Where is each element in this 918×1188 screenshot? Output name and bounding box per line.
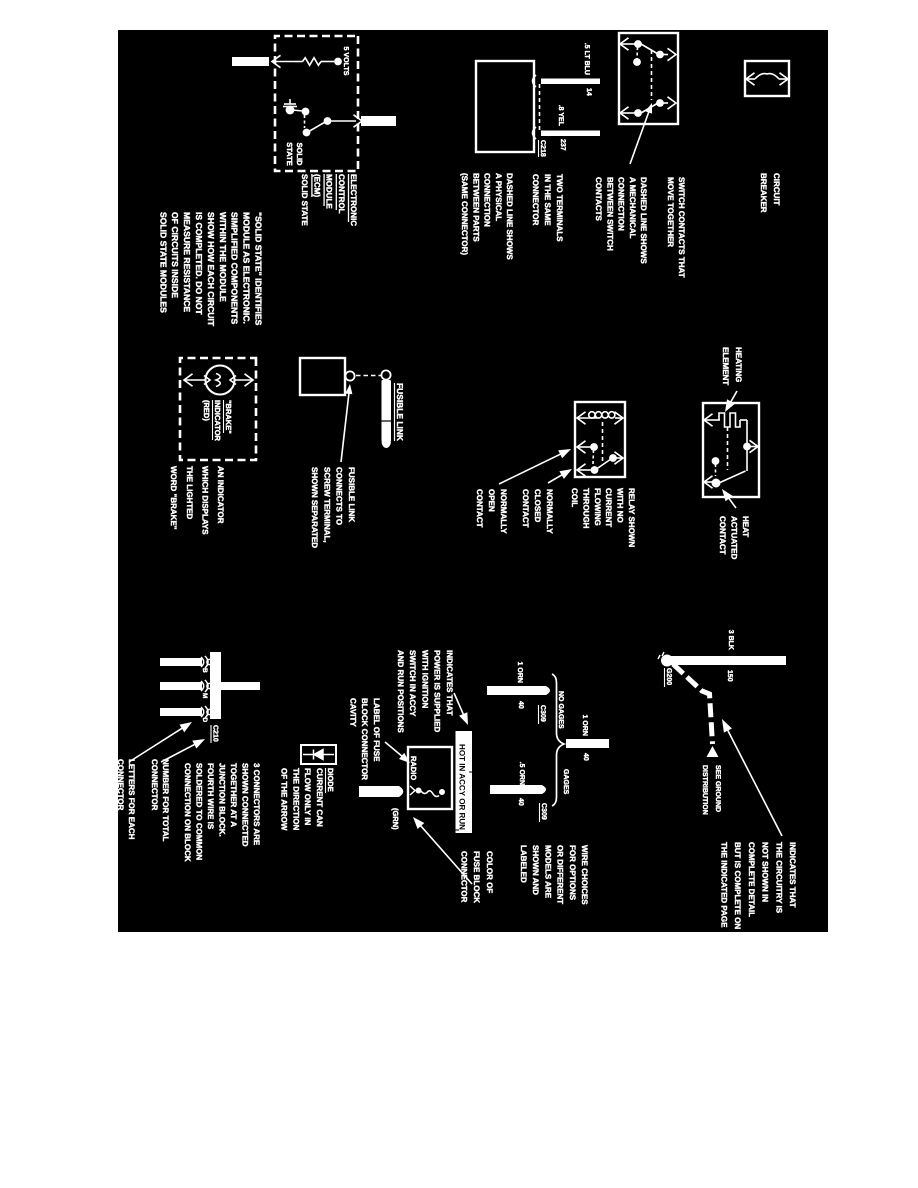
svg-text:ACTUATED: ACTUATED [730,516,739,560]
svg-text:1 ORN: 1 ORN [516,662,523,683]
svg-text:OPEN: OPEN [487,489,496,512]
svg-text:RELAY SHOWN: RELAY SHOWN [627,488,636,547]
svg-text:HEAT: HEAT [741,516,750,537]
svg-text:INDICATES THAT: INDICATES THAT [788,842,797,908]
svg-text:C210: C210 [212,725,219,742]
svg-text:CONNECTOR: CONNECTOR [150,759,159,811]
svg-text:5 VOLTS: 5 VOLTS [342,47,349,76]
svg-text:SOLID STATE: SOLID STATE [300,174,309,226]
svg-text:OR DIFFERENT: OR DIFFERENT [556,845,565,904]
svg-text:SOLID: SOLID [295,143,304,167]
svg-text:FLOW ONLY IN: FLOW ONLY IN [303,768,312,826]
svg-text:INDICATES THAT: INDICATES THAT [445,650,454,716]
svg-text:C309: C309 [539,705,546,722]
svg-text:NORMALLY: NORMALLY [499,489,508,534]
svg-text:DIODE: DIODE [326,768,335,792]
svg-text:FUSIBLE LINK: FUSIBLE LINK [395,383,405,442]
svg-text:SHOWN SEPARATED: SHOWN SEPARATED [310,467,319,548]
svg-text:FUSIBLE LINK: FUSIBLE LINK [347,467,356,522]
svg-text:THE INDICATED PAGE: THE INDICATED PAGE [720,842,729,928]
svg-text:40: 40 [517,701,524,709]
svg-text:237: 237 [559,139,566,151]
svg-text:WITH NO: WITH NO [616,488,625,523]
svg-text:CURRENT CAN: CURRENT CAN [315,768,324,827]
svg-text:B: B [201,668,208,673]
svg-text:MODULE AS ELECTRONIC.: MODULE AS ELECTRONIC. [242,212,252,324]
svg-text:GAGES: GAGES [562,769,569,795]
svg-text:.8 YEL: .8 YEL [557,105,564,127]
svg-text:IS COMPLETED. DO NOT: IS COMPLETED. DO NOT [194,212,204,315]
svg-text:MOVE TOGETHER: MOVE TOGETHER [666,177,675,247]
svg-text:CONTROL: CONTROL [337,174,346,214]
svg-text:A PHYSICAL: A PHYSICAL [494,173,503,221]
svg-text:NUMBER FOR TOTAL: NUMBER FOR TOTAL [161,759,170,841]
svg-text:SOLDERED TO COMMON: SOLDERED TO COMMON [195,763,204,860]
svg-text:SCREW TERMINAL,: SCREW TERMINAL, [322,467,331,543]
svg-text:THE DIRECTION: THE DIRECTION [291,768,300,830]
svg-text:DISTRIBUTION: DISTRIBUTION [701,765,708,815]
svg-text:14: 14 [585,88,592,96]
svg-text:SEE GROUND: SEE GROUND [714,765,721,812]
svg-text:DASHED LINE SHOWS: DASHED LINE SHOWS [505,173,514,260]
svg-text:OF THE ARROW: OF THE ARROW [280,768,289,831]
svg-text:(GRN): (GRN) [391,808,400,830]
svg-text:THROUGH: THROUGH [581,488,590,529]
svg-text:FOURTH WIRE IS: FOURTH WIRE IS [206,763,215,830]
svg-text:TOGETHER AT A: TOGETHER AT A [229,763,238,827]
svg-text:OF CIRCUITS INSIDE: OF CIRCUITS INSIDE [170,212,180,298]
svg-text:CIRCUIT: CIRCUIT [772,173,781,206]
svg-text:LABELED: LABELED [519,845,528,883]
svg-text:MODULE: MODULE [325,174,334,209]
svg-text:CONNECTOR: CONNECTOR [116,759,125,811]
svg-text:C309: C309 [540,803,547,820]
svg-text:(ECM): (ECM) [312,174,321,197]
svg-text:AND RUN POSITIONS: AND RUN POSITIONS [396,650,405,733]
svg-text:3 CONNECTORS ARE: 3 CONNECTORS ARE [252,763,261,846]
svg-text:"SOLID STATE" IDENTIFIES: "SOLID STATE" IDENTIFIES [254,212,264,326]
svg-text:(RED): (RED) [202,400,211,421]
svg-text:TWO TERMINALS: TWO TERMINALS [555,174,564,242]
svg-text:HEATING: HEATING [734,347,743,382]
svg-text:M: M [201,693,208,698]
svg-text:BETWEEN PARTS: BETWEEN PARTS [471,173,480,242]
svg-text:SHOWN CONNECTED: SHOWN CONNECTED [241,763,250,847]
svg-text:WITHIN THE MODULE: WITHIN THE MODULE [218,212,228,302]
svg-text:BLOCK CONNECTOR: BLOCK CONNECTOR [360,698,369,780]
svg-text:THE LIGHTED: THE LIGHTED [185,466,194,520]
svg-text:WHICH DISPLAYS: WHICH DISPLAYS [200,466,209,535]
svg-text:NORMALLY: NORMALLY [545,489,554,534]
svg-text:BUT IS COMPLETE ON: BUT IS COMPLETE ON [733,842,742,929]
svg-text:NO GAGES: NO GAGES [557,691,564,729]
svg-text:HOT IN ACCY OR RUN: HOT IN ACCY OR RUN [458,744,467,830]
svg-text:LABEL OF FUSE: LABEL OF FUSE [372,698,381,762]
svg-text:"BRAKE": "BRAKE" [224,400,233,434]
svg-text:FLOWING: FLOWING [593,488,602,526]
svg-text:.5 ORN: .5 ORN [518,762,525,785]
svg-text:JUNCTION BLOCK.: JUNCTION BLOCK. [218,763,227,837]
svg-text:40: 40 [517,798,524,806]
svg-text:WITH IGNITION: WITH IGNITION [420,650,429,708]
svg-text:FOR OPTIONS: FOR OPTIONS [568,845,577,901]
svg-text:MEASURE RESISTANCE: MEASURE RESISTANCE [182,212,192,312]
svg-text:COIL: COIL [570,488,579,507]
svg-text:CONNECTOR: CONNECTOR [531,174,540,226]
svg-text:FUSE BLOCK: FUSE BLOCK [472,851,481,903]
svg-text:CONTACT: CONTACT [521,489,530,528]
svg-text:AN INDICATOR: AN INDICATOR [216,466,225,524]
svg-text:DASHED LINE SHOWS: DASHED LINE SHOWS [639,177,648,264]
svg-text:COLOR OF: COLOR OF [485,851,494,893]
svg-text:CONNECTOR: CONNECTOR [459,851,468,903]
svg-text:CONNECTION ON BLOCK: CONNECTION ON BLOCK [183,763,192,862]
svg-text:SHOW HOW EACH CIRCUIT: SHOW HOW EACH CIRCUIT [206,212,216,327]
svg-text:ELECTRONIC: ELECTRONIC [349,174,358,226]
svg-text:THE CIRCUITRY IS: THE CIRCUITRY IS [774,842,783,914]
svg-text:CLOSED: CLOSED [533,489,542,523]
svg-text:WORD "BRAKE": WORD "BRAKE" [169,466,178,530]
svg-text:CONTACT: CONTACT [475,489,484,528]
svg-text:POWER IS SUPPLIED: POWER IS SUPPLIED [433,650,442,732]
svg-text:.5 LT BLU: .5 LT BLU [583,43,590,75]
svg-text:A MECHANICAL: A MECHANICAL [628,177,637,239]
svg-text:NOT SHOWN IN: NOT SHOWN IN [761,842,770,902]
svg-text:CONNECTION: CONNECTION [617,177,626,231]
svg-text:(SAME CONNECTOR): (SAME CONNECTOR) [460,173,469,255]
svg-text:CONTACT: CONTACT [718,516,727,555]
svg-text:BETWEEN SWITCH: BETWEEN SWITCH [605,177,614,251]
svg-text:CONTACTS: CONTACTS [594,177,603,222]
svg-text:G200: G200 [665,668,672,685]
svg-text:SIMPLIFIED COMPONENTS: SIMPLIFIED COMPONENTS [230,212,240,324]
svg-text:LETTERS FOR EACH: LETTERS FOR EACH [127,759,136,840]
svg-text:RADIO: RADIO [409,756,418,780]
svg-text:COMPLETE DETAIL: COMPLETE DETAIL [747,842,756,917]
svg-text:CONNECTION: CONNECTION [483,173,492,227]
svg-text:CURRENT: CURRENT [604,488,613,527]
svg-text:SWITCH IN ACCY: SWITCH IN ACCY [408,650,417,717]
svg-text:IN THE SAME: IN THE SAME [543,174,552,226]
svg-text:WIRE CHOICES: WIRE CHOICES [580,845,589,905]
svg-text:MODELS ARE: MODELS ARE [543,845,552,899]
svg-text:SOLID STATE MODULES: SOLID STATE MODULES [158,212,168,313]
svg-text:3 BLK: 3 BLK [727,630,734,650]
svg-text:INDICATOR: INDICATOR [213,400,222,442]
svg-text:D: D [201,718,208,723]
svg-text:C218: C218 [539,140,546,157]
svg-text:SHOWN AND: SHOWN AND [531,845,540,895]
svg-text:ELEMENT: ELEMENT [721,347,730,385]
svg-text:CONNECTS TO: CONNECTS TO [335,467,344,525]
svg-text:SWITCH CONTACTS THAT: SWITCH CONTACTS THAT [677,177,686,278]
svg-text:CAVITY: CAVITY [348,698,357,727]
svg-text:BREAKER: BREAKER [759,173,768,213]
svg-text:STATE: STATE [285,142,294,165]
svg-text:40: 40 [582,753,589,761]
svg-text:150: 150 [726,670,733,682]
svg-text:1 ORN: 1 ORN [581,715,588,736]
